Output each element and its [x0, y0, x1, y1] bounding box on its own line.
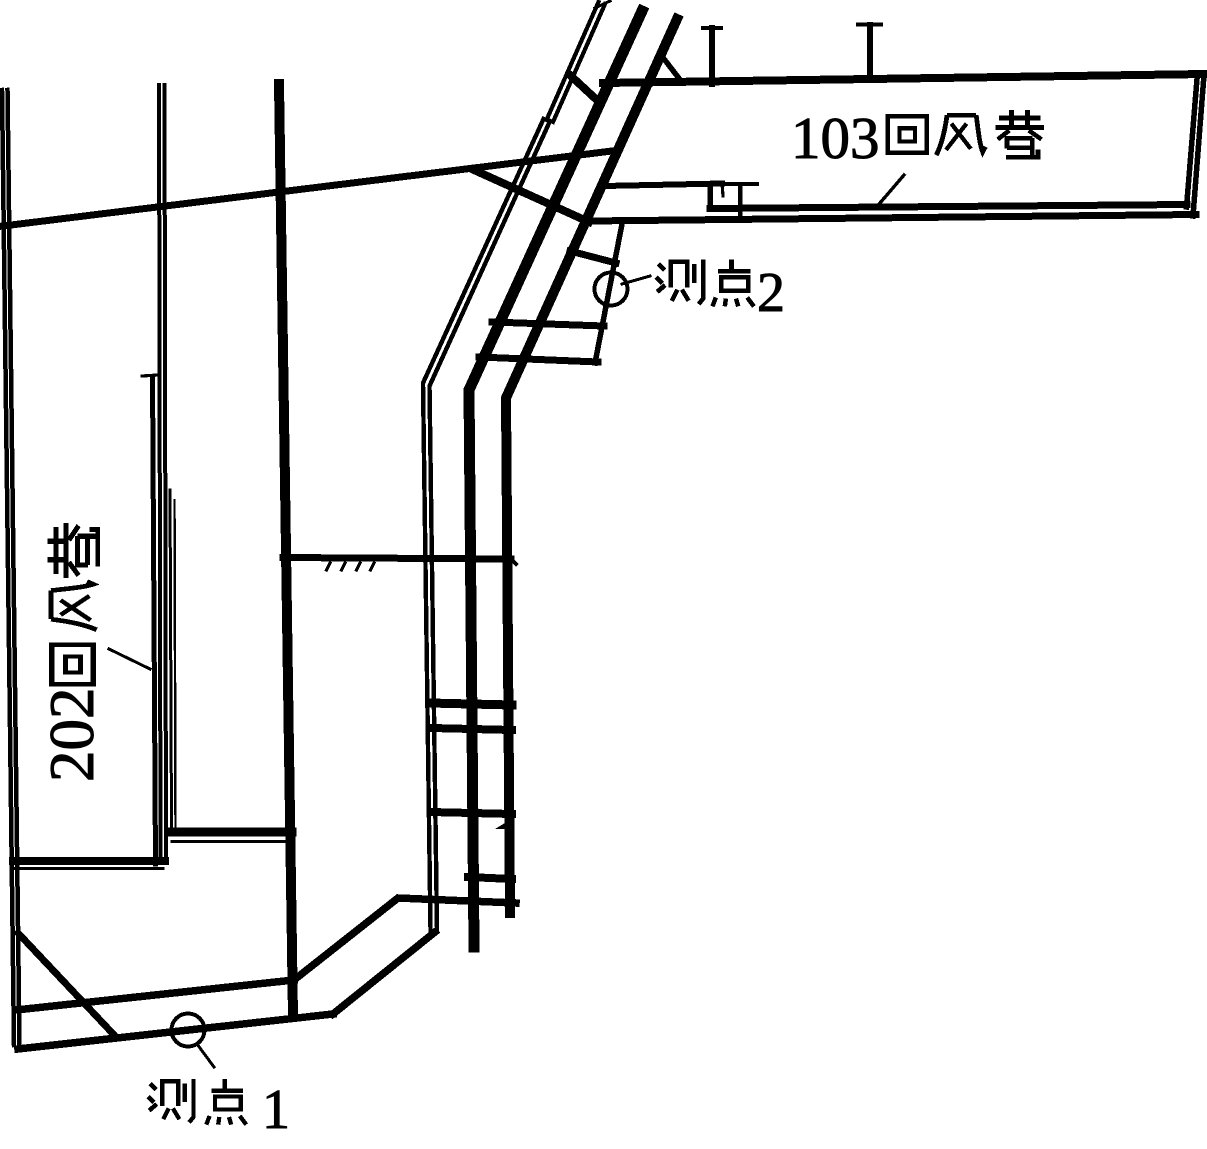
svg-text:1: 1 [262, 1079, 290, 1141]
svg-text:2: 2 [757, 262, 785, 324]
svg-text:202: 202 [37, 688, 107, 783]
svg-text:103: 103 [791, 105, 880, 171]
